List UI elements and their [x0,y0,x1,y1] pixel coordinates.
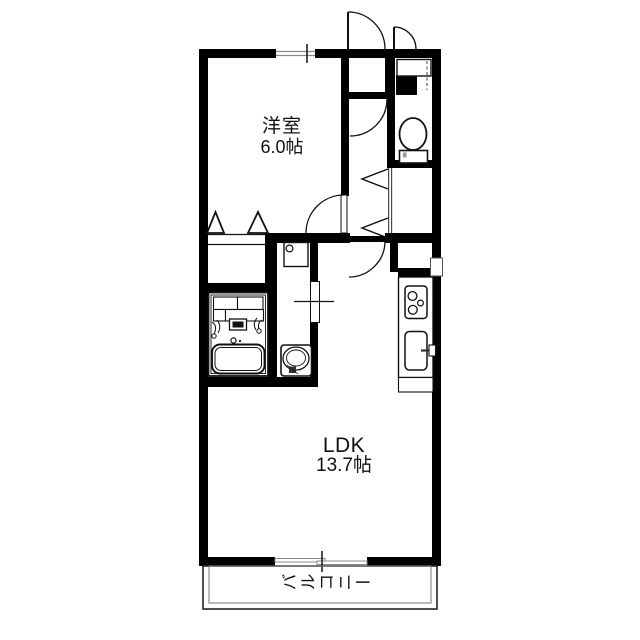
hall-closet-bifold-icon [362,168,392,238]
balcony-label: バルコニー [281,572,374,597]
bedroom-window-icon [276,44,315,63]
washing-machine-pan-icon [284,243,308,267]
bedroom-closet-bifold-icon [207,212,268,245]
kitchen-icon [399,277,436,392]
ldk-size: 13.7帖 [316,456,372,476]
hall-door-icon [350,99,387,136]
entrance-door-icon [348,12,385,49]
wall-niche-icon [431,258,443,276]
western-room-size: 6.0帖 [260,137,303,157]
bedroom-door-icon [306,195,347,233]
storage-door-icon [394,27,416,49]
washbasin-icon [281,345,312,376]
western-room-label: 洋室 6.0帖 [260,117,303,157]
western-room-name: 洋室 [260,117,303,137]
ldk-door-icon [349,241,385,277]
toilet-icon [400,118,428,163]
ldk-name: LDK [316,436,372,456]
floor-plan-drawing [0,0,640,640]
washroom-sliding-door-icon [294,282,334,323]
balcony-sliding-window-icon [275,551,367,572]
unit-bath-icon [209,293,269,377]
ldk-label: LDK 13.7帖 [316,436,372,476]
floor-plan: 洋室 6.0帖 LDK 13.7帖 バルコニー [0,0,640,640]
